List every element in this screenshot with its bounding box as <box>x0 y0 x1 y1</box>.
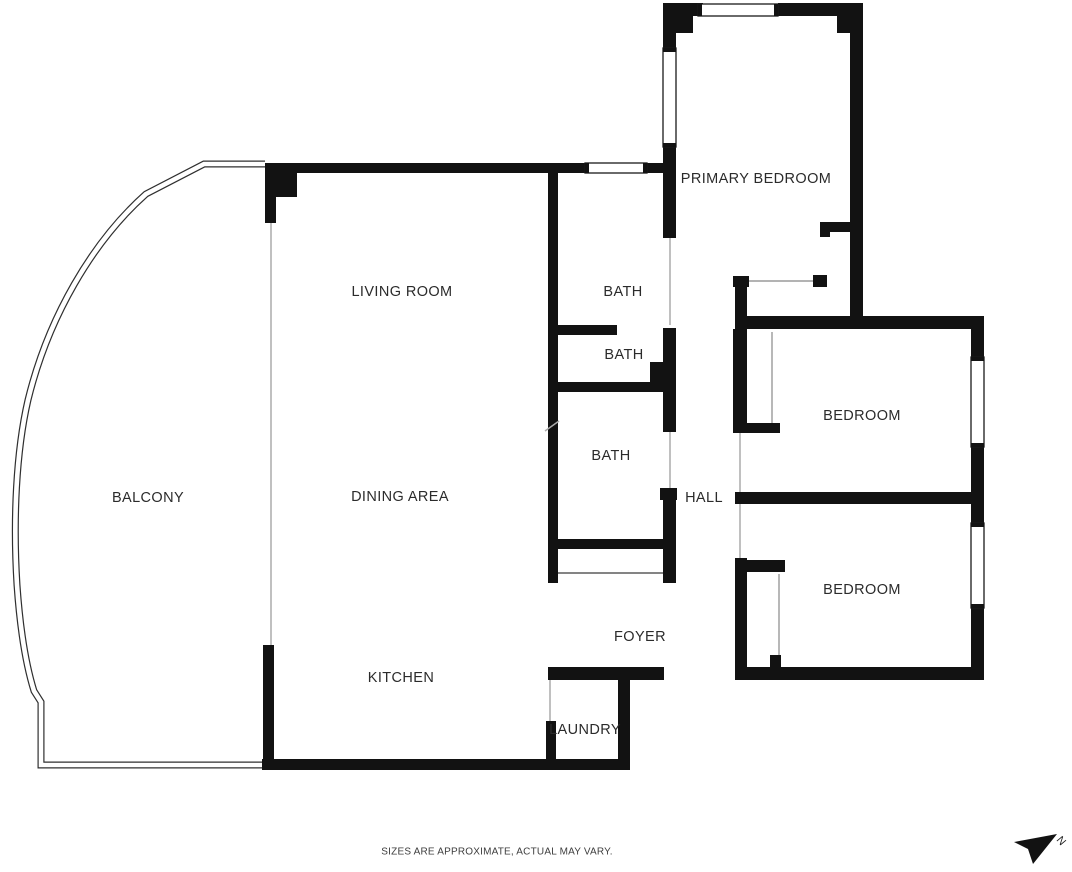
window-primary-bedroom-top <box>698 4 778 16</box>
wall-segment <box>548 570 558 583</box>
window-cap <box>971 443 984 447</box>
wall-segment <box>548 325 617 335</box>
window-glass <box>971 523 984 608</box>
wall-segment <box>770 655 781 667</box>
north-arrow-icon <box>1014 834 1057 864</box>
room-label-bedroom-2: BEDROOM <box>823 582 901 598</box>
window-cap <box>698 4 702 16</box>
window-bedroom-2 <box>971 523 984 608</box>
room-label-bath-2: BATH <box>604 347 643 363</box>
wall-segment <box>262 759 630 770</box>
wall-segment <box>735 492 984 504</box>
wall-segment <box>663 3 693 33</box>
wall-segment <box>813 275 827 287</box>
floor-plan-page: N BALCONY LIVING ROOM DINING AREA KITCHE… <box>0 0 1072 872</box>
balcony-outline-outer <box>15 164 265 765</box>
balcony-outline-inner <box>15 164 265 765</box>
room-label-bath-3: BATH <box>591 448 630 464</box>
window-glass <box>663 48 676 147</box>
room-label-kitchen: KITCHEN <box>368 670 434 686</box>
wall-segment <box>735 667 984 680</box>
wall-segment <box>660 488 677 500</box>
window-cap <box>663 48 676 52</box>
north-letter: N <box>1054 834 1068 848</box>
room-label-foyer: FOYER <box>614 629 666 645</box>
window-glass <box>585 163 647 173</box>
wall-segment <box>548 164 558 583</box>
wall-segment <box>747 560 785 572</box>
wall-segment <box>548 667 664 680</box>
wall-segment <box>663 33 676 48</box>
wall-segment <box>971 608 984 667</box>
wall-segment <box>820 222 830 237</box>
room-label-dining-area: DINING AREA <box>351 489 449 505</box>
wall-segment <box>733 276 749 287</box>
wall-segment <box>265 163 585 173</box>
window-cap <box>585 163 589 173</box>
north-arrow: N <box>1014 834 1068 864</box>
wall-segment <box>740 423 780 433</box>
window-cap <box>663 143 676 147</box>
wall-segment <box>735 316 984 329</box>
wall-segment <box>647 163 664 173</box>
room-label-bath-1: BATH <box>603 284 642 300</box>
window-cap <box>971 523 984 527</box>
wall-segment <box>263 645 274 759</box>
door-openings <box>271 223 740 721</box>
room-label-hall: HALL <box>685 490 723 506</box>
wall-segment <box>850 3 863 316</box>
window-cap <box>774 4 778 16</box>
room-label-balcony: BALCONY <box>112 490 184 506</box>
window-bath-top <box>585 163 647 173</box>
room-label-laundry: LAUNDRY <box>549 722 621 738</box>
wall-segment <box>733 329 747 433</box>
window-cap <box>643 163 647 173</box>
wall-segment <box>663 147 676 173</box>
window-glass <box>698 4 778 16</box>
wall-segment <box>618 667 630 759</box>
wall-segment <box>971 329 984 357</box>
room-label-bedroom-1: BEDROOM <box>823 408 901 424</box>
balcony-outline <box>15 164 265 765</box>
floor-plan-drawing: N <box>0 0 1072 872</box>
wall-segment <box>548 539 670 549</box>
disclaimer-text: SIZES ARE APPROXIMATE, ACTUAL MAY VARY. <box>381 847 612 858</box>
wall-segment <box>548 382 660 392</box>
window-cap <box>971 604 984 608</box>
room-label-living-room: LIVING ROOM <box>351 284 452 300</box>
wall-segment <box>778 3 837 16</box>
wall-segment <box>663 173 676 238</box>
wall-segment <box>663 392 676 432</box>
wall-segment <box>971 447 984 492</box>
window-bedroom-1 <box>971 357 984 447</box>
window-primary-bedroom-left <box>663 48 676 147</box>
wall-segment <box>735 558 747 680</box>
window-glass <box>971 357 984 447</box>
closet-lines <box>558 281 813 655</box>
room-label-primary-bedroom: PRIMARY BEDROOM <box>681 171 832 187</box>
window-cap <box>971 357 984 361</box>
wall-segment <box>663 328 676 362</box>
